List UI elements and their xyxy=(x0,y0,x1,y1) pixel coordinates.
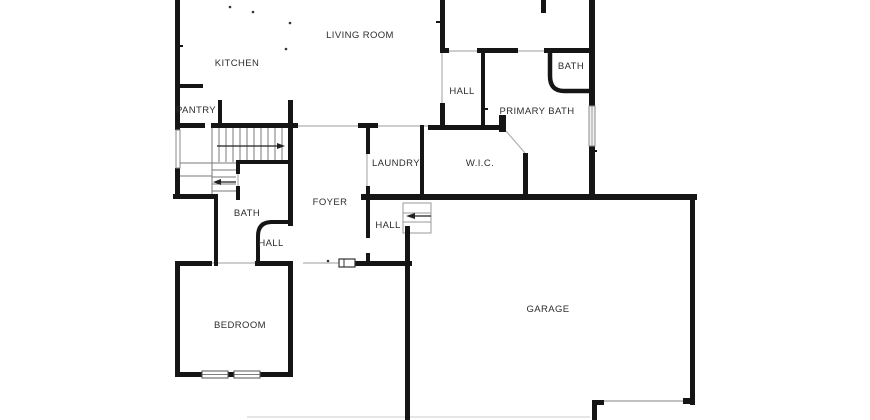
room-label-garage: GARAGE xyxy=(526,304,569,315)
wall-bedroom-right xyxy=(288,261,293,377)
room-label-hall-upper: HALL xyxy=(449,86,474,97)
room-label-bath-upper: BATH xyxy=(558,61,584,72)
room-label-primary-bath: PRIMARY BATH xyxy=(499,106,574,117)
window-stairwell xyxy=(176,130,180,168)
room-label-pantry: PANTRY xyxy=(176,105,216,116)
wall-pantry-right xyxy=(218,100,222,127)
wall-bedroom-left xyxy=(175,261,180,377)
room-label-living-room: LIVING ROOM xyxy=(326,30,394,41)
floor-plan-drawing: KITCHEN LIVING ROOM PANTRY HALL BATH PRI… xyxy=(0,0,870,420)
room-label-bath-lower: BATH xyxy=(234,208,260,219)
entry-door xyxy=(339,259,355,267)
plan-background xyxy=(0,0,870,420)
wall-garage-right xyxy=(690,194,695,405)
room-label-hall-entry: HALL xyxy=(375,220,400,231)
wall-garage-left xyxy=(405,226,410,420)
room-label-foyer: FOYER xyxy=(313,197,348,208)
room-label-kitchen: KITCHEN xyxy=(215,58,260,69)
wall-bath-lower-top xyxy=(238,160,292,164)
wall-pantry-shelf xyxy=(175,84,203,88)
room-label-bedroom: BEDROOM xyxy=(214,320,266,331)
wall-garage-top xyxy=(361,194,697,200)
room-label-hall-lower: HALL xyxy=(258,238,283,249)
window-mullion-bedroom xyxy=(228,372,234,377)
floor-plan-page: KITCHEN LIVING ROOM PANTRY HALL BATH PRI… xyxy=(0,0,870,420)
room-label-laundry: LAUNDRY xyxy=(372,158,420,169)
room-label-wic: W.I.C. xyxy=(466,158,494,169)
